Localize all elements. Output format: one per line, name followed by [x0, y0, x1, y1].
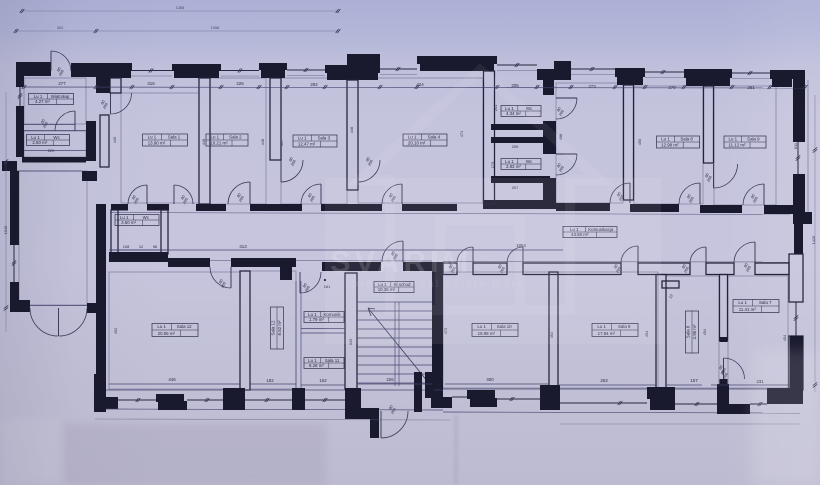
svg-text:279: 279 — [668, 85, 676, 90]
svg-text:1056: 1056 — [211, 25, 220, 30]
svg-text:13.90 m²: 13.90 m² — [148, 140, 166, 145]
svg-text:80: 80 — [179, 193, 186, 200]
svg-text:Sala 8: Sala 8 — [686, 325, 691, 338]
svg-text:80: 80 — [717, 363, 724, 370]
svg-text:200: 200 — [498, 265, 506, 274]
svg-text:207: 207 — [512, 185, 519, 190]
svg-text:251: 251 — [747, 85, 755, 90]
svg-text:80: 80 — [555, 161, 562, 168]
svg-text:12: 12 — [667, 293, 673, 299]
svg-text:1358: 1358 — [176, 5, 185, 10]
svg-text:Lu 1: Lu 1 — [34, 94, 43, 99]
svg-text:277: 277 — [58, 81, 66, 86]
svg-text:3.98 m²: 3.98 m² — [692, 324, 697, 339]
svg-text:1854: 1854 — [516, 243, 526, 248]
svg-text:Sala 9: Sala 9 — [618, 324, 631, 329]
svg-text:200: 200 — [181, 196, 189, 205]
svg-text:80: 80 — [235, 191, 242, 198]
svg-text:345: 345 — [348, 339, 353, 346]
svg-text:80: 80 — [39, 117, 46, 124]
svg-text:611: 611 — [793, 143, 798, 149]
svg-text:200: 200 — [682, 265, 690, 274]
svg-text:80: 80 — [719, 368, 726, 375]
svg-text:200: 200 — [614, 265, 622, 274]
svg-text:80: 80 — [130, 193, 137, 200]
svg-text:448: 448 — [201, 139, 206, 146]
svg-text:200: 200 — [744, 264, 752, 273]
svg-text:175: 175 — [490, 162, 495, 169]
svg-text:Sala 2: Sala 2 — [229, 134, 242, 139]
svg-text:157: 157 — [690, 378, 698, 383]
svg-text:200: 200 — [132, 196, 140, 205]
svg-text:200: 200 — [366, 158, 374, 167]
svg-text:200: 200 — [719, 366, 727, 375]
svg-text:313: 313 — [239, 244, 247, 249]
svg-text:Sala 1: Sala 1 — [168, 134, 181, 139]
svg-text:43.50 m²: 43.50 m² — [571, 232, 589, 237]
svg-text:472: 472 — [443, 328, 448, 335]
svg-text:96: 96 — [153, 244, 157, 249]
svg-text:Wc: Wc — [526, 106, 533, 111]
svg-text:Lu 1: Lu 1 — [661, 136, 670, 141]
svg-text:Wc: Wc — [143, 215, 150, 220]
svg-text:200: 200 — [391, 252, 399, 261]
svg-text:12.47 m²: 12.47 m² — [298, 141, 316, 146]
svg-text:200: 200 — [219, 280, 227, 289]
svg-text:Lu 1: Lu 1 — [308, 312, 317, 317]
svg-text:454: 454 — [782, 334, 787, 341]
svg-text:200: 200 — [101, 101, 109, 110]
svg-text:440: 440 — [112, 136, 117, 143]
svg-text:17.84 m²: 17.84 m² — [598, 331, 616, 336]
svg-text:Lu 1: Lu 1 — [298, 135, 307, 140]
svg-text:454: 454 — [549, 331, 554, 338]
svg-text:Sala 10: Sala 10 — [497, 324, 512, 329]
svg-text:454: 454 — [644, 330, 649, 337]
svg-text:200: 200 — [389, 194, 397, 203]
svg-text:80: 80 — [496, 262, 503, 269]
svg-text:Komunikacja: Komunikacja — [588, 227, 614, 232]
svg-text:Lu 1: Lu 1 — [570, 227, 579, 232]
svg-text:Wc: Wc — [526, 159, 533, 164]
svg-text:209: 209 — [512, 144, 519, 149]
svg-text:200: 200 — [303, 284, 311, 293]
svg-text:241: 241 — [493, 105, 498, 112]
svg-text:80: 80 — [387, 403, 394, 410]
svg-text:4.34 m²: 4.34 m² — [506, 111, 521, 116]
svg-text:400: 400 — [486, 377, 494, 382]
svg-text:200: 200 — [308, 194, 316, 203]
svg-text:162: 162 — [319, 378, 327, 383]
svg-text:446: 446 — [168, 377, 176, 382]
svg-text:80: 80 — [389, 249, 396, 256]
svg-text:Komunik: Komunik — [323, 312, 341, 317]
svg-text:446: 446 — [349, 127, 354, 134]
svg-text:6.28 m²: 6.28 m² — [309, 363, 324, 368]
svg-text:Lu 1: Lu 1 — [729, 136, 738, 141]
svg-text:20.10 m²: 20.10 m² — [408, 140, 426, 145]
svg-text:452: 452 — [113, 328, 118, 335]
svg-text:Kl.schod: Kl.schod — [394, 282, 411, 287]
svg-text:Lu 1: Lu 1 — [148, 134, 157, 139]
svg-text:Wiatrołap: Wiatrołap — [51, 94, 70, 99]
svg-text:80: 80 — [703, 171, 710, 178]
svg-text:Lu 1: Lu 1 — [157, 324, 166, 329]
svg-text:Lu 1: Lu 1 — [31, 135, 40, 140]
svg-text:Lu 1: Lu 1 — [378, 282, 387, 287]
svg-text:11.41 m²: 11.41 m² — [739, 307, 757, 312]
svg-text:200: 200 — [705, 174, 713, 183]
svg-text:80: 80 — [447, 262, 454, 269]
svg-text:474: 474 — [459, 130, 464, 137]
svg-text:182: 182 — [266, 378, 274, 383]
svg-text:200: 200 — [721, 371, 729, 380]
svg-text:200: 200 — [751, 195, 759, 204]
svg-text:Sala 3: Sala 3 — [318, 135, 331, 140]
svg-text:80: 80 — [742, 261, 749, 268]
svg-text:80: 80 — [387, 191, 394, 198]
svg-text:454: 454 — [702, 328, 707, 335]
svg-text:231: 231 — [756, 379, 764, 384]
svg-text:80: 80 — [55, 65, 62, 72]
svg-text:80: 80 — [99, 98, 106, 105]
svg-text:200: 200 — [289, 158, 297, 167]
svg-text:12.98 m²: 12.98 m² — [661, 142, 679, 147]
svg-text:Lu 1: Lu 1 — [308, 358, 317, 363]
svg-text:80: 80 — [364, 155, 371, 162]
svg-text:80: 80 — [612, 262, 619, 269]
svg-text:Wc: Wc — [53, 135, 60, 140]
svg-text:200: 200 — [41, 120, 49, 129]
svg-text:10.36 m²: 10.36 m² — [378, 287, 396, 292]
svg-text:Lu 1: Lu 1 — [120, 215, 129, 220]
svg-text:447: 447 — [279, 140, 284, 147]
svg-text:18.98 m²: 18.98 m² — [478, 331, 496, 336]
svg-text:496: 496 — [558, 134, 563, 141]
svg-text:226: 226 — [236, 81, 244, 86]
svg-text:11.12 m²: 11.12 m² — [728, 142, 746, 147]
svg-text:1040: 1040 — [3, 225, 8, 234]
svg-text:80: 80 — [615, 190, 622, 197]
svg-text:263: 263 — [600, 378, 608, 383]
svg-text:Lu 1: Lu 1 — [738, 300, 747, 305]
svg-text:302: 302 — [57, 25, 64, 30]
svg-text:446: 446 — [260, 139, 265, 146]
svg-text:80: 80 — [749, 192, 756, 199]
svg-text:Sala 8: Sala 8 — [680, 136, 693, 141]
svg-text:12: 12 — [139, 244, 143, 249]
svg-text:1420: 1420 — [811, 235, 816, 244]
svg-text:80: 80 — [287, 155, 294, 162]
svg-text:80: 80 — [685, 192, 692, 199]
svg-text:Sala 9: Sala 9 — [747, 136, 760, 141]
svg-text:200: 200 — [237, 194, 245, 203]
svg-text:80: 80 — [680, 262, 687, 269]
svg-text:Sala 11: Sala 11 — [325, 358, 340, 363]
svg-text:181: 181 — [324, 284, 331, 289]
svg-text:200: 200 — [389, 406, 397, 415]
svg-text:Lu 1: Lu 1 — [408, 134, 417, 139]
svg-text:424: 424 — [416, 82, 424, 87]
svg-text:200: 200 — [617, 193, 625, 202]
svg-text:80: 80 — [555, 105, 562, 112]
svg-text:450: 450 — [637, 138, 642, 145]
svg-text:Lu 1: Lu 1 — [505, 159, 514, 164]
svg-text:80: 80 — [301, 281, 308, 288]
svg-text:2.83 m²: 2.83 m² — [506, 164, 521, 169]
svg-text:220: 220 — [48, 148, 55, 153]
svg-text:205: 205 — [511, 83, 519, 88]
svg-text:Sala 12: Sala 12 — [177, 324, 192, 329]
svg-text:1.79 m²: 1.79 m² — [309, 317, 324, 322]
svg-text:282: 282 — [310, 82, 318, 87]
svg-text:4.27 m²: 4.27 m² — [35, 99, 50, 104]
svg-text:200: 200 — [557, 164, 565, 173]
svg-text:Lu 1: Lu 1 — [477, 324, 486, 329]
svg-text:316: 316 — [147, 81, 155, 86]
svg-text:226: 226 — [386, 377, 394, 382]
svg-text:273: 273 — [588, 84, 596, 89]
svg-text:2.60 m²: 2.60 m² — [32, 140, 47, 145]
svg-text:3.60 m²: 3.60 m² — [121, 220, 136, 225]
svg-text:200: 200 — [449, 265, 457, 274]
svg-text:200: 200 — [687, 195, 695, 204]
svg-text:200: 200 — [557, 108, 565, 117]
svg-text:Lu 1: Lu 1 — [211, 134, 220, 139]
svg-text:Lu 1: Lu 1 — [597, 324, 606, 329]
svg-text:20.05 m²: 20.05 m² — [158, 331, 176, 336]
svg-text:Sala 4: Sala 4 — [428, 134, 441, 139]
svg-text:Sala 7: Sala 7 — [759, 300, 772, 305]
svg-text:80: 80 — [217, 277, 224, 284]
svg-text:200: 200 — [57, 68, 65, 77]
svg-text:Sala 12: Sala 12 — [271, 320, 276, 335]
svg-text:10.21 m²: 10.21 m² — [210, 140, 228, 145]
svg-text:Lu 1: Lu 1 — [505, 106, 514, 111]
svg-text:8.52 m²: 8.52 m² — [277, 320, 282, 335]
svg-text:108: 108 — [123, 244, 130, 249]
svg-text:80: 80 — [306, 191, 313, 198]
